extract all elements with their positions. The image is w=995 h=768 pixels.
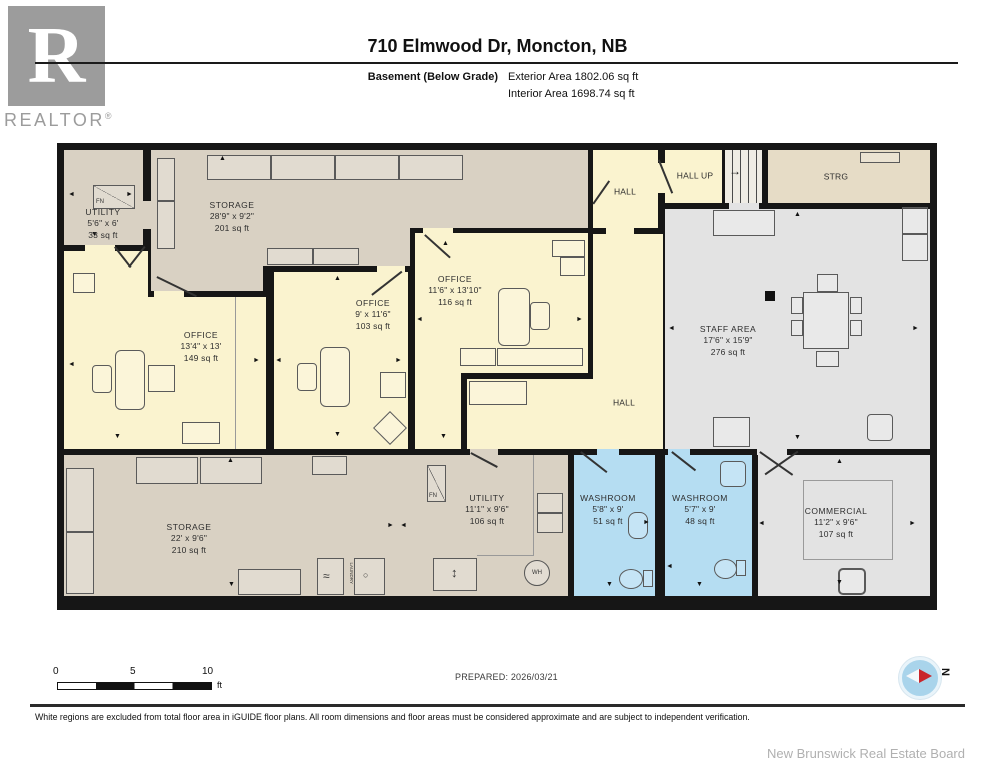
- shelf: [66, 532, 94, 594]
- floor-plan-page: R REALTOR® 710 Elmwood Dr, Moncton, NB B…: [0, 0, 995, 768]
- scale-bar: [57, 682, 212, 690]
- sink: [537, 513, 563, 533]
- cabinet: [713, 417, 750, 447]
- compass-north-label: N: [939, 668, 951, 676]
- realtor-brand: REALTOR: [4, 110, 105, 130]
- room-area: 51 sq ft: [580, 516, 636, 527]
- room-name: UTILITY: [85, 207, 120, 218]
- scale-unit: ft: [217, 680, 222, 690]
- room-area: 33 sq ft: [85, 230, 120, 241]
- measure-arrow-right: ►: [395, 357, 402, 364]
- room-label-storage-top: STORAGE 28'9" x 9'2" 201 sq ft: [210, 200, 255, 234]
- measure-arrow-left: ◄: [758, 520, 765, 527]
- room-label-hall-up: HALL UP: [677, 170, 714, 181]
- footer-rule: [30, 704, 965, 707]
- room-office-3-wing: [415, 371, 461, 449]
- attribution-text: New Brunswick Real Estate Board: [767, 746, 965, 761]
- prepared-date: PREPARED: 2026/03/21: [455, 672, 558, 682]
- stairs-direction-icon: →: [729, 164, 741, 178]
- shelf: [157, 158, 175, 201]
- shelf: [497, 348, 583, 366]
- door-opening: [143, 201, 151, 229]
- room-dims: 22' x 9'6": [167, 533, 212, 544]
- chair: [817, 274, 838, 292]
- room-name: UTILITY: [465, 493, 509, 504]
- cabinet: [552, 240, 585, 257]
- washer: [317, 558, 344, 595]
- cabinet: [469, 381, 527, 405]
- shelf: [860, 152, 900, 163]
- measure-arrow-left: ◄: [668, 325, 675, 332]
- door-opening: [729, 203, 759, 209]
- desk: [320, 347, 350, 407]
- room-dims: 5'7" x 9': [672, 504, 728, 515]
- room-area: 48 sq ft: [672, 516, 728, 527]
- room-dims: 5'6" x 6': [85, 218, 120, 229]
- measure-arrow-left: ◄: [400, 522, 407, 529]
- updown-arrow-icon: ↕: [451, 566, 458, 579]
- shelf: [207, 155, 271, 180]
- furnace-label: FN: [96, 199, 104, 205]
- measure-arrow-left: ◄: [416, 316, 423, 323]
- room-label-hall-top: HALL: [614, 186, 636, 197]
- chair: [791, 320, 803, 336]
- page-title: 710 Elmwood Dr, Moncton, NB: [0, 36, 995, 57]
- room-name: OFFICE: [355, 298, 391, 309]
- room-name: WASHROOM: [672, 493, 728, 504]
- room-label-strg: STRG: [824, 171, 848, 182]
- dryer: [354, 558, 385, 595]
- shelf: [312, 456, 347, 475]
- measure-arrow-down: ▼: [794, 434, 801, 441]
- measure-arrow-left: ◄: [666, 563, 673, 570]
- shelf: [399, 155, 463, 180]
- partition-line: [477, 555, 534, 556]
- room-name: STORAGE: [210, 200, 255, 211]
- sink: [537, 493, 563, 513]
- room-area: 201 sq ft: [210, 223, 255, 234]
- desk: [498, 288, 530, 346]
- room-dims: 11'6" x 13'10": [428, 285, 482, 296]
- measure-arrow-right: ►: [576, 316, 583, 323]
- room-dims: 5'8" x 9': [580, 504, 636, 515]
- measure-arrow-down: ▼: [440, 433, 447, 440]
- measure-arrow-up: ▲: [334, 275, 341, 282]
- furnace-label: FN: [429, 493, 437, 499]
- floor-label: Basement (Below Grade): [300, 71, 498, 83]
- water-heater-label: WH: [532, 570, 542, 576]
- measure-arrow-up: ▲: [794, 211, 801, 218]
- measure-arrow-up: ▲: [227, 457, 234, 464]
- room-name: WASHROOM: [580, 493, 636, 504]
- side-chair: [380, 372, 406, 398]
- toilet: [714, 559, 737, 579]
- measure-arrow-down: ▼: [228, 581, 235, 588]
- chair: [850, 320, 862, 336]
- measure-arrow-right: ►: [912, 325, 919, 332]
- measure-arrow-right: ►: [387, 522, 394, 529]
- measure-arrow-right: ►: [909, 520, 916, 527]
- washer-icon: ≈: [323, 570, 330, 582]
- measure-arrow-down: ▼: [606, 581, 613, 588]
- measure-arrow-down: ▼: [114, 433, 121, 440]
- cabinet: [560, 257, 585, 276]
- realtor-logo-text: REALTOR®: [4, 110, 114, 131]
- measure-arrow-up: ▲: [442, 240, 449, 247]
- room-name: STORAGE: [167, 522, 212, 533]
- floor-plan: →: [57, 143, 937, 610]
- shelf: [66, 468, 94, 532]
- room-dims: 28'9" x 9'2": [210, 211, 255, 222]
- shelf: [267, 248, 313, 265]
- measure-arrow-left: ◄: [68, 191, 75, 198]
- scale-tick-10: 10: [202, 666, 213, 677]
- exterior-area: Exterior Area 1802.06 sq ft: [508, 71, 638, 83]
- laundry-label: LAUNDRY: [348, 563, 353, 584]
- room-name: COMMERCIAL: [805, 506, 868, 517]
- cabinet: [902, 207, 928, 234]
- room-label-office-2: OFFICE 9' x 11'6" 103 sq ft: [355, 298, 391, 332]
- room-area: 149 sq ft: [180, 353, 221, 364]
- room-area: 276 sq ft: [700, 347, 756, 358]
- door-opening: [606, 228, 634, 234]
- room-area: 107 sq ft: [805, 529, 868, 540]
- desk: [115, 350, 145, 410]
- measure-arrow-down: ▼: [334, 431, 341, 438]
- door-opening: [423, 228, 453, 233]
- room-area: 106 sq ft: [465, 516, 509, 527]
- scale-tick-0: 0: [53, 666, 59, 677]
- room-label-commercial: COMMERCIAL 11'2" x 9'6" 107 sq ft: [805, 506, 868, 540]
- cabinet: [902, 234, 928, 261]
- room-label-hall-mid: HALL: [613, 397, 635, 408]
- room-label-washroom-2: WASHROOM 5'7" x 9' 48 sq ft: [672, 493, 728, 527]
- dryer-icon: ○: [363, 571, 368, 580]
- room-dims: 17'6" x 15'9": [700, 335, 756, 346]
- toilet-tank: [643, 570, 653, 587]
- room-strg: [768, 150, 930, 203]
- room-name: OFFICE: [428, 274, 482, 285]
- shelf: [460, 348, 496, 366]
- bench: [238, 569, 301, 595]
- room-dims: 11'1" x 9'6": [465, 504, 509, 515]
- closet: [713, 210, 775, 236]
- scale-tick-5: 5: [130, 666, 136, 677]
- office-chair: [92, 365, 112, 393]
- room-area: 103 sq ft: [355, 321, 391, 332]
- compass-tail: [906, 669, 919, 683]
- room-area: 116 sq ft: [428, 297, 482, 308]
- toilet: [619, 569, 643, 589]
- door-opening: [154, 291, 184, 297]
- measure-arrow-up: ▲: [219, 155, 226, 162]
- cabinet: [182, 422, 220, 444]
- measure-arrow-right: ►: [253, 357, 260, 364]
- measure-arrow-down: ▼: [696, 581, 703, 588]
- chair: [791, 297, 803, 314]
- sink: [867, 414, 893, 441]
- partition-line: [235, 297, 236, 449]
- toilet-tank: [736, 560, 746, 576]
- disclaimer-text: White regions are excluded from total fl…: [35, 712, 750, 722]
- interior-area: Interior Area 1698.74 sq ft: [508, 88, 635, 100]
- compass-needle: [919, 669, 932, 683]
- room-name: OFFICE: [180, 330, 221, 341]
- shelf: [271, 155, 335, 180]
- room-dims: 11'2" x 9'6": [805, 517, 868, 528]
- room-label-office-1: OFFICE 13'4" x 13' 149 sq ft: [180, 330, 221, 364]
- room-label-utility-top: UTILITY 5'6" x 6' 33 sq ft: [85, 207, 120, 241]
- water-heater: WH: [524, 560, 550, 586]
- measure-arrow-right: ►: [643, 519, 650, 526]
- registered-mark: ®: [105, 111, 114, 121]
- room-name: STAFF AREA: [700, 324, 756, 335]
- compass-icon: [899, 657, 941, 699]
- measure-arrow-up: ▲: [836, 458, 843, 465]
- measure-arrow-left: ◄: [68, 361, 75, 368]
- room-label-storage-bottom: STORAGE 22' x 9'6" 210 sq ft: [167, 522, 212, 556]
- room-storage-top-wing: [151, 266, 263, 291]
- room-label-washroom-1: WASHROOM 5'8" x 9' 51 sq ft: [580, 493, 636, 527]
- door-opening: [597, 449, 619, 455]
- shelf: [136, 457, 198, 484]
- partition-line: [533, 455, 534, 555]
- shelf: [157, 201, 175, 249]
- room-label-utility-bottom: UTILITY 11'1" x 9'6" 106 sq ft: [465, 493, 509, 527]
- measure-arrow-right: ►: [126, 191, 133, 198]
- sink: [720, 461, 746, 487]
- chair: [816, 351, 839, 367]
- shelf: [335, 155, 399, 180]
- cabinet: [73, 273, 95, 293]
- room-dims: 13'4" x 13': [180, 341, 221, 352]
- header-rule: [35, 62, 958, 64]
- measure-arrow-left: ◄: [275, 357, 282, 364]
- column: [765, 291, 775, 301]
- shelf: [313, 248, 359, 265]
- room-dims: 9' x 11'6": [355, 309, 391, 320]
- room-label-office-3: OFFICE 11'6" x 13'10" 116 sq ft: [428, 274, 482, 308]
- office-chair: [297, 363, 317, 391]
- measure-arrow-down: ▼: [836, 579, 843, 586]
- room-label-staff-area: STAFF AREA 17'6" x 15'9" 276 sq ft: [700, 324, 756, 358]
- table: [803, 292, 849, 349]
- room-area: 210 sq ft: [167, 545, 212, 556]
- office-chair: [530, 302, 550, 330]
- door-opening: [85, 245, 115, 251]
- chair: [850, 297, 862, 314]
- side-table: [148, 365, 175, 392]
